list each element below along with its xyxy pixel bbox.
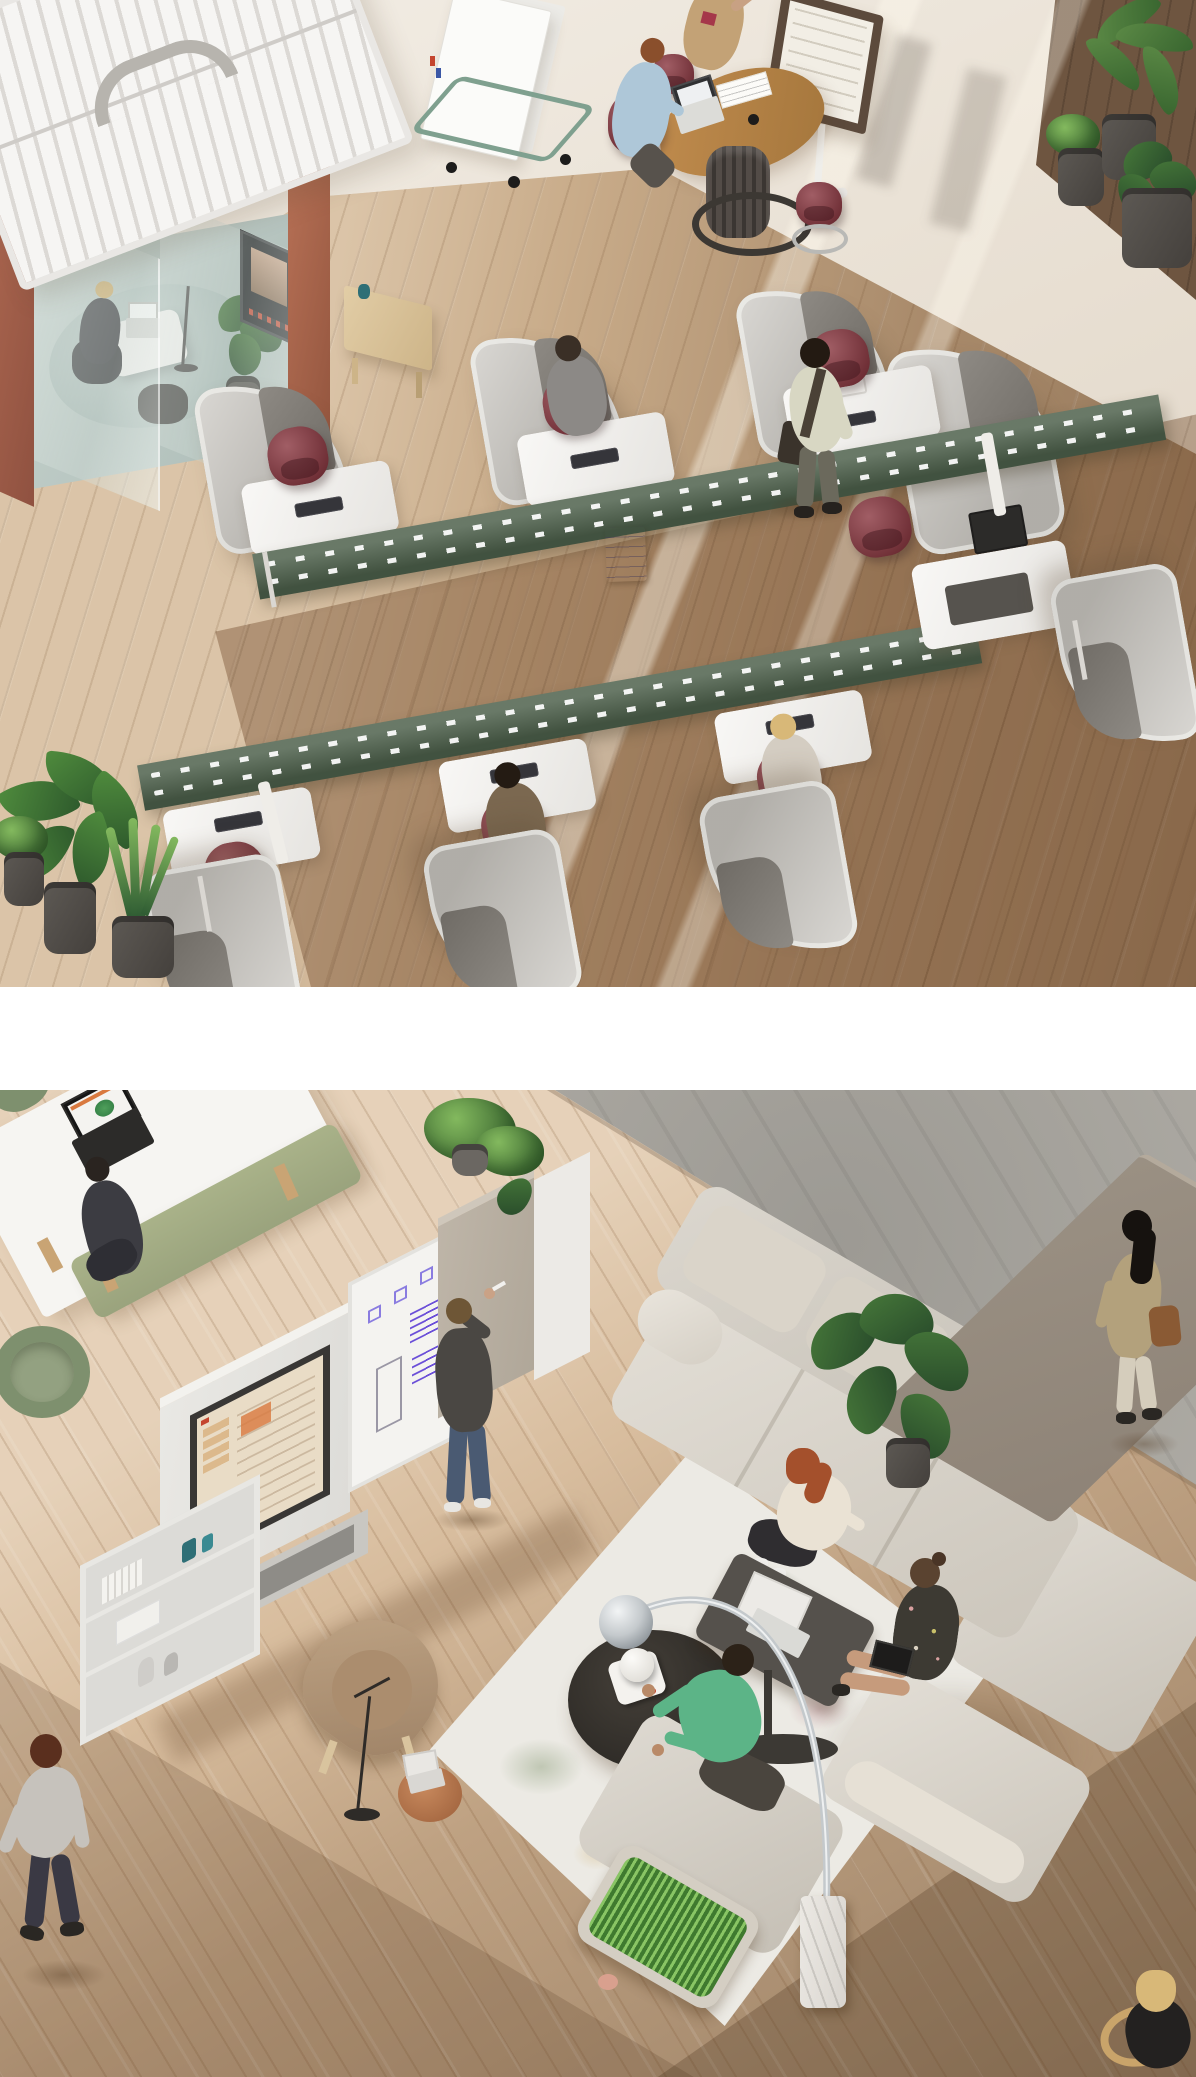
leg	[1134, 1355, 1158, 1413]
shadow	[1096, 1426, 1192, 1462]
plant-group-right	[1030, 30, 1196, 290]
shoe	[794, 506, 814, 518]
white-divider	[0, 987, 1196, 1090]
foot-ring	[692, 192, 812, 256]
plant-pot	[1058, 148, 1104, 206]
corner-sitter	[1096, 1970, 1196, 2077]
rubber-plant-pot	[886, 1438, 930, 1488]
tote-bag	[1148, 1305, 1182, 1348]
privacy-hood	[1047, 560, 1196, 758]
photo-top-open-office	[0, 0, 1196, 987]
marble-lamp-base	[800, 1896, 846, 2008]
walking-man-bag	[778, 338, 864, 552]
teal-vase	[358, 284, 370, 299]
privacy-hood	[696, 777, 861, 966]
marker-red	[430, 56, 435, 66]
shoe	[19, 1923, 46, 1942]
privacy-hood	[420, 826, 585, 987]
hanging-note	[605, 527, 647, 582]
torso	[676, 0, 752, 75]
sideboard-leg	[416, 372, 422, 398]
caster	[508, 176, 520, 188]
plant-pot	[44, 882, 96, 954]
photo-montage-page	[0, 0, 1196, 2077]
caster	[446, 162, 457, 173]
walking-woman-right	[1088, 1210, 1196, 1480]
photo-bottom-lounge	[0, 1090, 1196, 2077]
standing-woman	[676, 0, 752, 75]
leg	[50, 1853, 81, 1927]
shadow	[6, 1954, 122, 1996]
bar-stool	[796, 182, 842, 226]
coffee-mug	[748, 114, 759, 125]
shoe	[1142, 1408, 1162, 1420]
head	[30, 1734, 62, 1768]
stool-footring	[792, 224, 848, 254]
raised-arm	[729, 0, 770, 13]
plant-pot	[4, 852, 44, 906]
plant-pot	[1122, 188, 1192, 268]
walking-man-left	[0, 1730, 150, 2040]
plant-group-left	[0, 730, 240, 987]
caster	[560, 154, 571, 165]
leg	[24, 1847, 51, 1929]
whiteboard-cart	[428, 0, 598, 204]
head	[800, 338, 830, 368]
plant-pot	[112, 916, 174, 978]
shoe	[59, 1920, 85, 1937]
leg	[1116, 1352, 1136, 1415]
marker-blue	[436, 68, 441, 78]
banana-leaf	[1137, 41, 1186, 118]
shoe	[822, 502, 842, 514]
desk-mat	[944, 572, 1034, 626]
shoe	[1116, 1412, 1136, 1424]
standing-table-group	[600, 0, 930, 326]
blonde-hair	[1136, 1970, 1176, 2012]
sideboard-leg	[352, 358, 358, 384]
hair-bun	[932, 1552, 946, 1566]
